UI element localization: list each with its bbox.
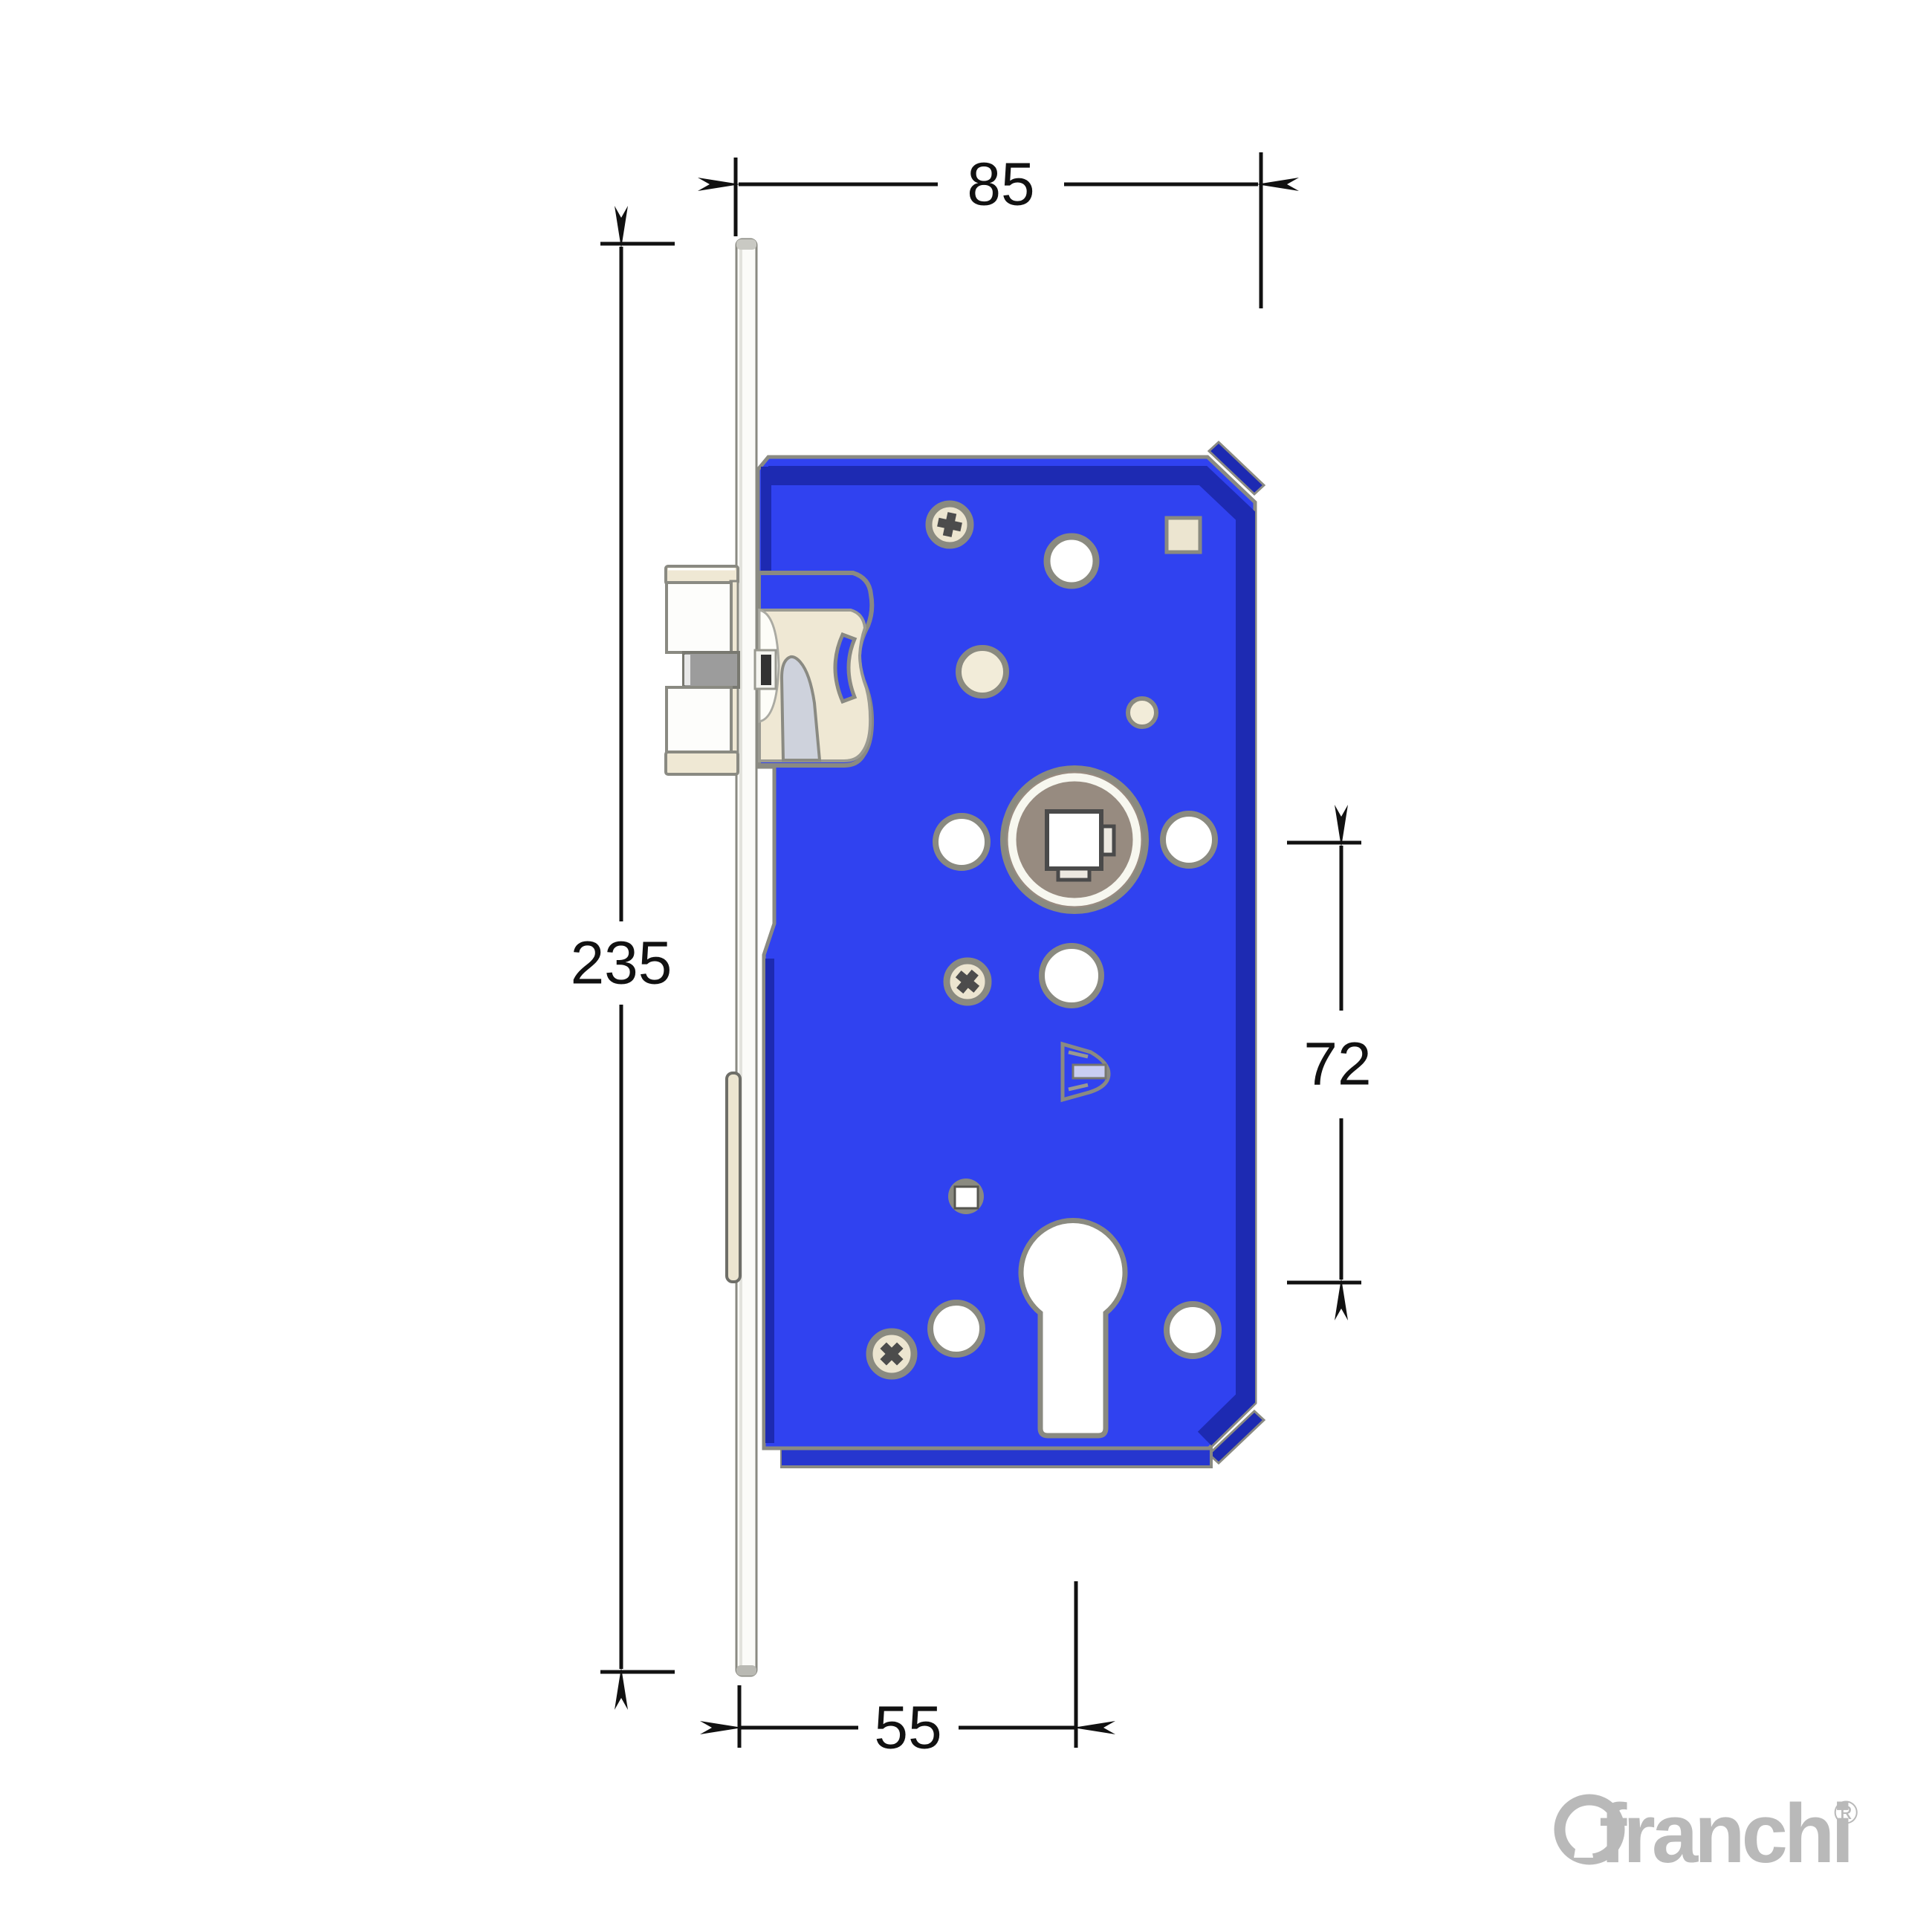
dimension-value: 85 — [967, 151, 1034, 218]
bolt-face-bottom — [667, 687, 731, 752]
square-hole-port — [948, 1179, 984, 1214]
hole-left-of-hub — [936, 816, 988, 868]
hole-right-of-cylinder — [1167, 1304, 1219, 1356]
mortice-lock-dimension-diagram: 85 235 72 55 — [0, 0, 1932, 1932]
hub-bottom-tab — [1058, 869, 1089, 880]
spindle-hub — [1003, 768, 1146, 911]
registered-mark: ® — [1834, 1795, 1858, 1831]
hole-right-of-hub — [1163, 814, 1215, 866]
keyhole-cutout-icon — [1574, 1824, 1593, 1858]
port-square — [955, 1187, 978, 1208]
screw-top — [929, 504, 970, 545]
bolt-notch-highlight — [684, 655, 690, 685]
bolt-cap-bottom — [666, 752, 738, 774]
bolt-face-top — [667, 583, 731, 652]
hole-cream-small — [1128, 698, 1156, 727]
brand-logo: franchi ® — [1560, 1787, 1858, 1880]
screw-bottom — [869, 1332, 914, 1376]
screw-mid — [947, 961, 988, 1002]
diagram-canvas: 85 235 72 55 — [0, 0, 1932, 1932]
dimension-width-85: 85 — [736, 151, 1261, 309]
latch-cavity — [755, 573, 872, 765]
hole-below-hub — [1042, 946, 1101, 1005]
faceplate-top-cap — [736, 239, 756, 250]
dimension-backset-55: 55 — [739, 1581, 1076, 1762]
faceplate — [736, 239, 756, 1676]
hole-left-of-cylinder — [930, 1303, 982, 1355]
latch-bolt — [666, 566, 739, 774]
hub-side-tab — [1102, 826, 1114, 855]
hole-cream-mid — [959, 648, 1006, 696]
dimension-value: 235 — [571, 930, 672, 997]
deadbolt-slot-bar — [727, 1073, 740, 1282]
latch-slot — [761, 655, 771, 685]
brand-name: franchi — [1599, 1787, 1850, 1880]
lever-spring-pad — [1073, 1065, 1106, 1078]
bolt-notch — [684, 652, 739, 687]
keyhole-wedge — [1574, 1835, 1593, 1858]
square-tab — [1167, 518, 1200, 552]
dimension-height-235: 235 — [571, 244, 675, 1672]
dimension-value: 55 — [874, 1694, 941, 1762]
dimension-centres-72: 72 — [1287, 843, 1372, 1283]
hub-square-hole — [1047, 811, 1101, 869]
hole-round-top — [1047, 537, 1096, 586]
faceplate-bottom-cap — [736, 1665, 756, 1676]
dimension-value: 72 — [1303, 1031, 1371, 1098]
